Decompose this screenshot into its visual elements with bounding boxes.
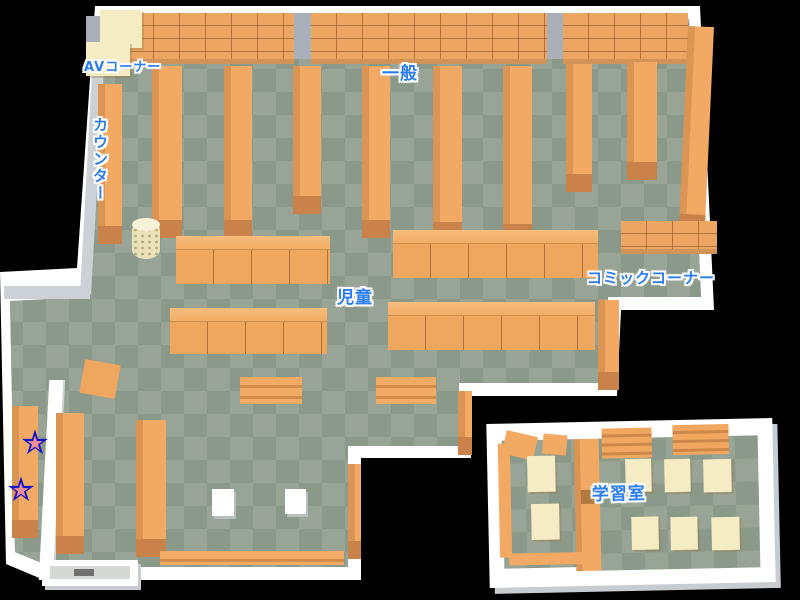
label-general: 一般: [382, 59, 418, 84]
wall-shelf: [160, 551, 344, 565]
door-mat: [74, 569, 94, 576]
label-av-corner: AVコーナー: [84, 56, 161, 75]
bookshelf: [542, 434, 568, 456]
childrens-shelf: [170, 308, 327, 354]
bookshelf: [566, 64, 592, 192]
comic-shelf: [621, 221, 717, 254]
star-fill: ★: [4, 473, 38, 507]
bookshelf: [136, 420, 166, 557]
label-counter: カウンター: [90, 117, 111, 202]
library-floor-map: 学習室 AVコーナー 一般 カウンター 児童 コミックコーナー ★ ★ ★ ★: [0, 0, 800, 600]
comic-shelf: [598, 300, 619, 390]
star-marker-icon[interactable]: ★ ★: [4, 473, 38, 507]
bookshelf: [601, 428, 652, 459]
bookshelf: [433, 66, 462, 240]
bookshelf: [563, 13, 688, 64]
bookshelf: [348, 464, 361, 559]
bookshelf: [503, 66, 532, 242]
label-children: 児童: [337, 283, 373, 308]
study-table: [631, 516, 659, 550]
round-display-rack: [132, 221, 160, 259]
pillar: [294, 13, 311, 59]
bookshelf: [627, 62, 657, 180]
study-table: [670, 517, 698, 551]
bookshelf: [152, 66, 182, 238]
pillar: [547, 13, 563, 59]
study-table: [711, 517, 740, 551]
star-fill: ★: [18, 426, 52, 460]
childrens-shelf: [393, 230, 598, 278]
label-study-room: 学習室: [592, 479, 647, 505]
bookshelf: [362, 66, 390, 238]
angled-table: [79, 359, 120, 399]
wall-shelf: [509, 552, 585, 566]
bookshelf: [311, 13, 547, 64]
entrance: [42, 560, 138, 586]
bookshelf: [224, 66, 252, 238]
study-table: [664, 459, 691, 493]
wing-wall-shade: [4, 286, 90, 299]
bookshelf: [56, 413, 84, 554]
picture-book-rack: [240, 377, 302, 404]
label-comic-corner: コミックコーナー: [587, 267, 715, 288]
picture-book-rack: [376, 377, 436, 404]
wall-shelf: [498, 444, 512, 558]
white-table: [285, 489, 306, 514]
white-table: [212, 489, 234, 516]
star-marker-icon[interactable]: ★ ★: [18, 426, 52, 460]
study-table: [703, 459, 732, 493]
study-table: [531, 504, 560, 541]
study-room: 学習室: [486, 418, 775, 588]
study-table: [527, 456, 556, 493]
childrens-shelf: [388, 302, 595, 350]
bookshelf: [672, 424, 729, 455]
childrens-shelf: [176, 236, 330, 284]
bookshelf: [458, 391, 472, 455]
bookshelf: [293, 66, 321, 214]
